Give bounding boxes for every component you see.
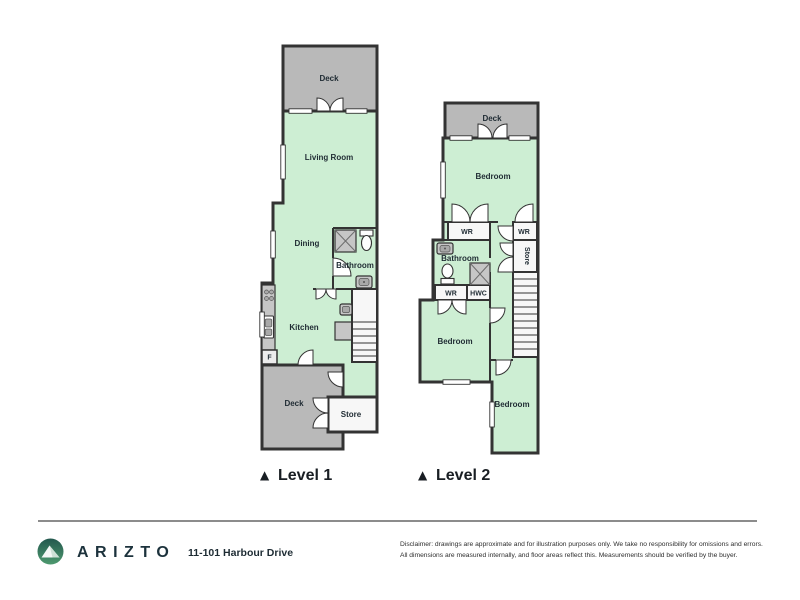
floorplan-page: Deck Living Room Dining Bathroom Kitchen… — [0, 0, 800, 600]
toilet-icon — [360, 230, 373, 251]
room-label-wr-left: WR — [461, 229, 473, 236]
room-label-wr-right: WR — [518, 229, 530, 236]
kitchen-sink-icon — [264, 316, 274, 338]
mountain-logo-icon — [37, 538, 64, 565]
room-label-deck: Deck — [482, 114, 502, 123]
level2-caption: Level 2 — [436, 467, 490, 484]
disclaimer-line-2: All dimensions are measured internally, … — [400, 551, 760, 562]
room-label-fridge: F — [267, 355, 272, 362]
arizto-logo — [37, 538, 64, 565]
room-label-bedroom-bottom: Bedroom — [494, 400, 529, 409]
room-label-bedroom-top: Bedroom — [475, 172, 510, 181]
room-label-bathroom: Bathroom — [336, 261, 374, 270]
window — [509, 136, 530, 141]
hall-basin-icon — [340, 304, 352, 315]
room-label-living: Living Room — [305, 153, 353, 162]
room-label-bedroom-mid: Bedroom — [437, 337, 472, 346]
room-label-wr-lower: WR — [445, 291, 457, 298]
window — [443, 380, 470, 385]
stair-landing — [335, 322, 352, 340]
disclaimer-line-1: Disclaimer: drawings are approximate and… — [400, 540, 760, 551]
level1-plan: Deck Living Room Dining Bathroom Kitchen… — [260, 46, 377, 484]
brand-name: ARIZTO — [77, 544, 175, 562]
listing-address: 11-101 Harbour Drive — [188, 547, 293, 559]
window — [271, 231, 276, 258]
shower-icon — [335, 230, 356, 252]
disclaimer-text: Disclaimer: drawings are approximate and… — [400, 540, 760, 561]
room-label-store: Store — [341, 410, 362, 419]
window — [281, 145, 286, 179]
level1-marker-icon: ▲ — [260, 468, 270, 482]
level1-caption: Level 1 — [278, 467, 332, 484]
room-label-bathroom: Bathroom — [441, 254, 479, 263]
room-label-store: Store — [523, 247, 530, 265]
window — [450, 136, 472, 141]
room-label-deck-bottom: Deck — [284, 399, 304, 408]
room-label-dining: Dining — [295, 239, 320, 248]
vanity-icon — [356, 276, 372, 288]
footer-divider — [38, 520, 757, 522]
toilet-icon — [441, 264, 454, 284]
room-label-hwc: HWC — [470, 291, 487, 298]
level2-marker-icon: ▲ — [418, 468, 428, 482]
level1-stairs-area — [352, 289, 377, 362]
shower-icon — [470, 263, 490, 285]
room-label-deck-top: Deck — [319, 74, 339, 83]
window — [346, 109, 367, 114]
vanity-icon — [437, 243, 453, 254]
room-label-kitchen: Kitchen — [289, 323, 318, 332]
window — [289, 109, 312, 114]
window — [441, 162, 446, 198]
level2-plan: Deck Bedroom WR WR Bathroom WR HWC Store… — [418, 103, 538, 484]
window — [260, 312, 265, 337]
floor-plan-canvas: Deck Living Room Dining Bathroom Kitchen… — [0, 0, 800, 510]
